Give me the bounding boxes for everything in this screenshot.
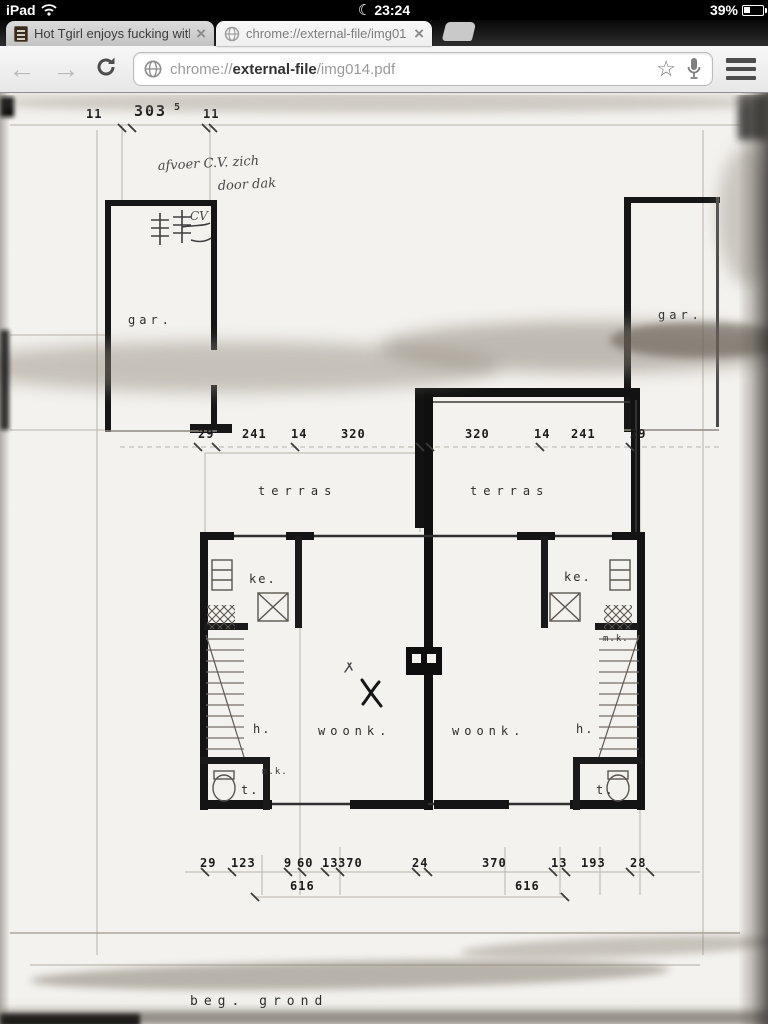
browser-toolbar: ← → chrome://external-file/img014.pdf ☆ (0, 46, 768, 93)
ipad-screen: iPad ☾23:24 39% Hot Tgirl enjoys fucking… (0, 0, 768, 1024)
chimney-block (406, 647, 442, 675)
bookmark-star-icon[interactable]: ☆ (656, 56, 676, 82)
tab-title: chrome://external-file/img01 (246, 26, 408, 41)
back-button[interactable]: ← (0, 54, 44, 85)
bottom-dim: 9 (284, 856, 292, 870)
fixtures (212, 560, 630, 801)
forward-button[interactable]: → (44, 54, 88, 85)
bottom-dim: 13 (551, 856, 567, 870)
mid-dim: 14 (534, 427, 550, 441)
menu-icon[interactable] (726, 58, 756, 80)
url-scheme: chrome:// (170, 61, 233, 78)
total-dim-left: 616 (290, 879, 315, 893)
new-tab-button[interactable] (442, 22, 477, 41)
bottom-dim: 193 (581, 856, 606, 870)
garage-left-label: gar. (128, 313, 173, 327)
url-host: external-file (233, 61, 317, 78)
kitchen-left-label: ke. (249, 572, 277, 586)
mid-dim: 241 (242, 427, 267, 441)
scan-right-edge (738, 93, 768, 1024)
handwritten-x-mark (345, 663, 381, 706)
floorplan-drawing: 11 303 5 11 afvoer C.V. zich door dak CV… (0, 95, 768, 1024)
bottom-dim: 123 (231, 856, 256, 870)
mid-dim: 29 (630, 427, 646, 441)
toilet-left-label: t. (241, 783, 259, 797)
tab-title: Hot Tgirl enjoys fucking with (34, 26, 190, 41)
page-favicon (14, 26, 28, 42)
globe-favicon (224, 26, 240, 42)
toilet-right-label: t. (596, 783, 614, 797)
total-dim-right: 616 (515, 879, 540, 893)
bottom-dim: 370 (338, 856, 363, 870)
mid-dim: 14 (291, 427, 307, 441)
bottom-dim: 370 (482, 856, 507, 870)
kitchen-right-label: ke. (564, 570, 592, 584)
scan-smudges (0, 95, 768, 1024)
tab-strip: Hot Tgirl enjoys fucking with × chrome:/… (0, 20, 768, 46)
status-bar: iPad ☾23:24 39% (0, 0, 768, 20)
meter-closet-right-label: m.k. (603, 634, 629, 644)
garage-right-label: gar. (658, 308, 703, 322)
battery-icon (742, 5, 764, 16)
bottom-dim: 60 (297, 856, 313, 870)
hall-left-label: h. (253, 722, 271, 736)
time-label: 23:24 (374, 2, 410, 18)
mid-dim: 320 (341, 427, 366, 441)
floor-title: beg. grond (190, 994, 328, 1009)
do-not-disturb-moon-icon: ☾ (358, 2, 371, 19)
bottom-dim: 29 (200, 856, 216, 870)
bottom-dim: 13 (322, 856, 338, 870)
bottom-dim: 28 (630, 856, 646, 870)
mid-dim: 320 (465, 427, 490, 441)
party-wall (424, 390, 433, 810)
tab-close-icon[interactable]: × (414, 25, 424, 42)
voice-search-mic-icon[interactable] (686, 57, 702, 81)
cv-sketch-label: CV (190, 209, 209, 223)
livingroom-left-label: woonk. (318, 724, 391, 738)
tab-close-icon[interactable]: × (196, 25, 206, 42)
url-text: chrome://external-file/img014.pdf (170, 61, 648, 78)
url-bar[interactable]: chrome://external-file/img014.pdf ☆ (133, 52, 713, 86)
url-path: /img014.pdf (317, 61, 395, 78)
clock: ☾23:24 (0, 1, 768, 19)
hall-right-label: h. (576, 722, 594, 736)
mid-dim: 29 (198, 427, 214, 441)
meter-closet-left-label: m.k. (262, 767, 288, 777)
bottom-dim: 24 (412, 856, 428, 870)
tab-background-page[interactable]: Hot Tgirl enjoys fucking with × (6, 21, 214, 46)
mid-dim: 241 (571, 427, 596, 441)
globe-icon (144, 60, 162, 78)
terrace-walls (415, 388, 640, 535)
pdf-viewport[interactable]: 11 303 5 11 afvoer C.V. zich door dak CV… (0, 93, 768, 1024)
terras-right-label: terras (470, 484, 549, 498)
livingroom-right-label: woonk. (452, 724, 525, 738)
battery-percent-label: 39% (710, 2, 738, 18)
terras-left-label: terras (258, 484, 337, 498)
reload-button[interactable] (88, 55, 124, 84)
handwritten-note-line2: door dak (217, 176, 276, 194)
tab-active-pdf[interactable]: chrome://external-file/img01 × (216, 21, 432, 46)
handwritten-note-line1: afvoer C.V. zich (157, 154, 259, 174)
scan-left-edge (0, 93, 10, 1024)
